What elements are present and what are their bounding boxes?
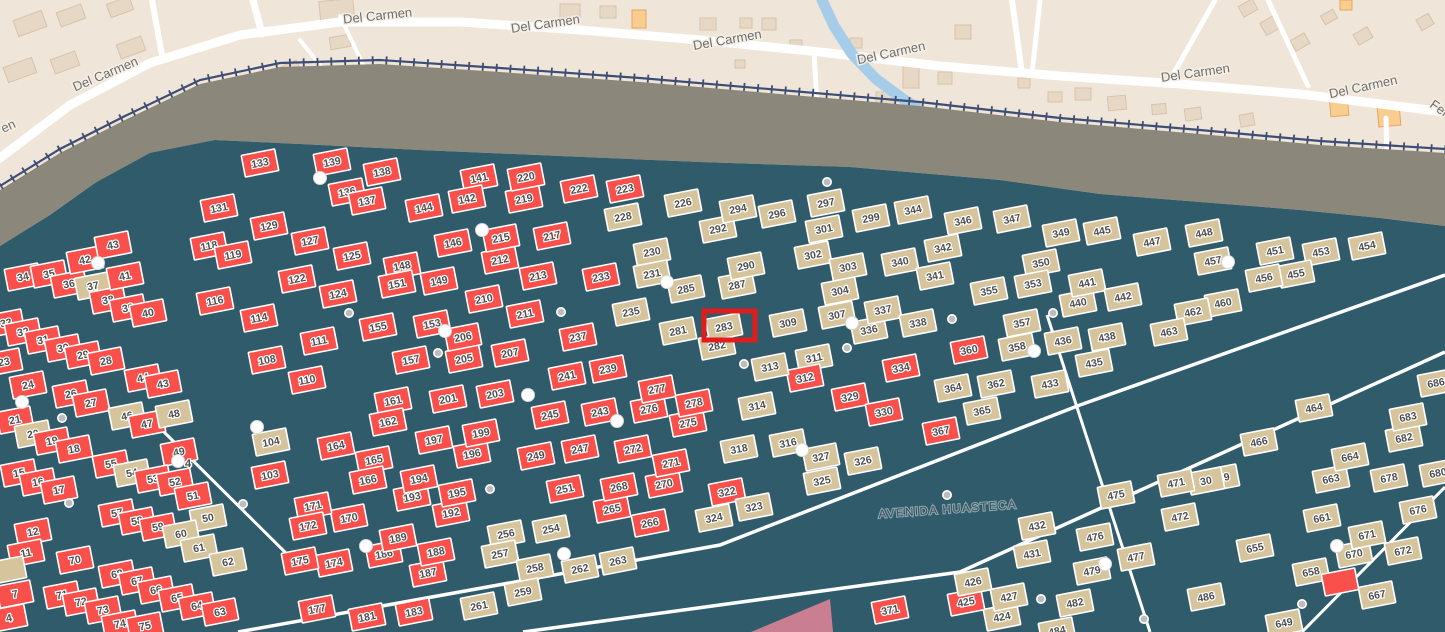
poi-dot[interactable] bbox=[522, 389, 535, 402]
poi-dot-small[interactable] bbox=[1140, 615, 1148, 623]
parcel-number: 41 bbox=[118, 269, 132, 283]
poi-dot[interactable] bbox=[92, 257, 105, 270]
parcel-number: 50 bbox=[201, 511, 215, 525]
poi-dot[interactable] bbox=[558, 548, 571, 561]
poi-dot[interactable] bbox=[1331, 540, 1344, 553]
building bbox=[740, 18, 752, 28]
poi-dot-small[interactable] bbox=[1298, 600, 1306, 608]
parcel-number: 48 bbox=[167, 407, 181, 421]
poi-dot[interactable] bbox=[611, 415, 624, 428]
building bbox=[735, 60, 745, 68]
poi-dot-small[interactable] bbox=[740, 360, 748, 368]
building bbox=[1018, 78, 1030, 88]
parcel-number: 40 bbox=[141, 306, 155, 320]
map-viewport[interactable]: 3435363738394041424333323130292823242627… bbox=[0, 0, 1445, 632]
building bbox=[762, 18, 776, 30]
poi-dot[interactable] bbox=[16, 396, 29, 409]
parcel-number: 34 bbox=[16, 270, 30, 284]
parcel-number: 62 bbox=[221, 555, 235, 569]
poi-dot-small[interactable] bbox=[1049, 309, 1057, 317]
building-highlighted bbox=[1340, 0, 1352, 10]
parcel-number: 75 bbox=[138, 619, 152, 632]
poi-dot-small[interactable] bbox=[823, 178, 831, 186]
poi-dot-small[interactable] bbox=[345, 309, 353, 317]
poi-dot[interactable] bbox=[439, 325, 452, 338]
parcel-number: 70 bbox=[68, 553, 82, 567]
poi-dot[interactable] bbox=[251, 421, 264, 434]
poi-dot[interactable] bbox=[846, 317, 859, 330]
poi-dot-small[interactable] bbox=[943, 491, 951, 499]
poi-dot-small[interactable] bbox=[1037, 595, 1045, 603]
building bbox=[955, 25, 971, 39]
parcel-number: 17 bbox=[52, 483, 66, 497]
parcel-number: 28 bbox=[99, 354, 113, 368]
poi-dot-small[interactable] bbox=[434, 349, 442, 357]
parcel-number: 18 bbox=[67, 442, 81, 456]
poi-dot[interactable] bbox=[314, 172, 327, 185]
building bbox=[903, 66, 919, 88]
poi-dot[interactable] bbox=[172, 455, 185, 468]
parcel-number: 42 bbox=[78, 253, 92, 267]
poi-dot-small[interactable] bbox=[65, 499, 73, 507]
parcel-number: 43 bbox=[106, 238, 120, 252]
building bbox=[1152, 103, 1167, 114]
building-highlighted bbox=[632, 10, 646, 28]
poi-dot[interactable] bbox=[661, 276, 674, 289]
parcel-number: 30 bbox=[1199, 474, 1213, 488]
poi-dot-small[interactable] bbox=[486, 485, 494, 493]
building bbox=[1239, 113, 1255, 127]
building bbox=[600, 6, 616, 18]
building bbox=[1075, 88, 1091, 100]
building bbox=[1107, 95, 1126, 111]
parcel-number: 27 bbox=[84, 396, 98, 410]
building bbox=[938, 72, 952, 84]
poi-dot-small[interactable] bbox=[239, 500, 247, 508]
poi-dot-small[interactable] bbox=[948, 315, 956, 323]
poi-dot[interactable] bbox=[1222, 256, 1235, 269]
poi-label: 4 bbox=[185, 458, 192, 470]
parcel-number: 51 bbox=[186, 489, 200, 503]
poi-dot[interactable] bbox=[360, 540, 373, 553]
parcel-number: 74 bbox=[113, 617, 127, 631]
parcel-number: 43 bbox=[156, 377, 170, 391]
poi-dot-small[interactable] bbox=[58, 414, 66, 422]
poi-dot[interactable] bbox=[1028, 345, 1041, 358]
poi-dot[interactable] bbox=[796, 444, 809, 457]
parcel-number: 61 bbox=[192, 541, 206, 555]
poi-dot-small[interactable] bbox=[843, 344, 851, 352]
poi-dot[interactable] bbox=[1099, 558, 1112, 571]
parcel-number: 63 bbox=[213, 605, 227, 619]
poi-dot[interactable] bbox=[476, 224, 489, 237]
parcel-number: 47 bbox=[140, 417, 154, 431]
parcel-number: 24 bbox=[21, 378, 35, 392]
building bbox=[1048, 92, 1062, 102]
building bbox=[700, 18, 716, 30]
building bbox=[1184, 107, 1202, 121]
parcel-number: 12 bbox=[26, 525, 40, 539]
poi-dot-small[interactable] bbox=[557, 308, 565, 316]
map-canvas[interactable]: 3435363738394041424333323130292823242627… bbox=[0, 0, 1445, 632]
